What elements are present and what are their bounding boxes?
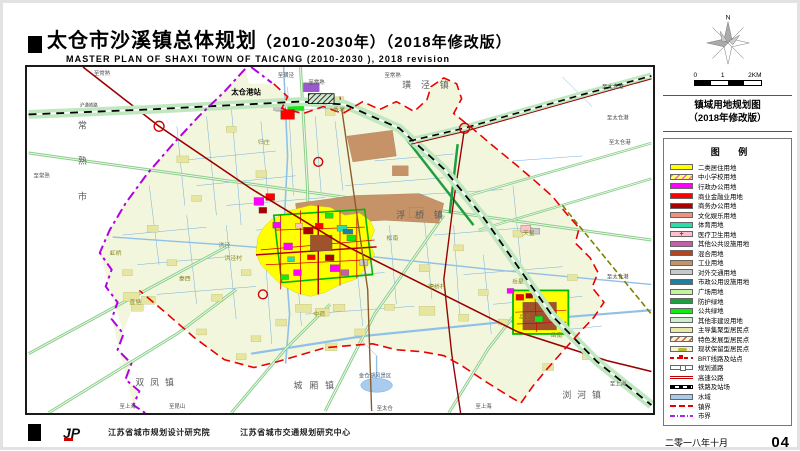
map-label: 金仓湖风景区 <box>359 371 392 379</box>
legend-row: 高速公路 <box>670 373 788 383</box>
legend-row: 水域 <box>670 392 788 402</box>
map-label: 至太仓港 <box>602 83 624 91</box>
legend-label: 商务办公用地 <box>698 201 736 210</box>
map-label: 至上海 <box>610 379 627 387</box>
map-label: 虹桥 <box>110 249 122 257</box>
legend-row: 现状保留型居民点 <box>670 344 788 354</box>
map-label: 太仓港站 <box>231 87 261 97</box>
legend: 图 例 二类居住用地中小学校用地行政办公用地商业金融业用地商务办公用地文化娱乐用… <box>663 138 792 426</box>
legend-label: 水域 <box>698 392 711 401</box>
legend-label: 其他公共设施用地 <box>698 239 749 248</box>
legend-row: 广场用地 <box>670 287 788 297</box>
map-label: 洪泾 <box>218 241 230 249</box>
map-label: 至璜泾 <box>278 71 295 79</box>
legend-row: 体育用地 <box>670 220 788 230</box>
legend-row: 特色发展型居民点 <box>670 334 788 344</box>
map-label: 岳王 <box>519 314 531 321</box>
legend-swatch-line-cityb <box>670 415 693 417</box>
legend-label: 市界 <box>698 411 711 420</box>
map-label: 德桥村 <box>428 282 446 290</box>
legend-swatch-fill <box>670 269 693 275</box>
map-label: 天星 <box>523 230 535 237</box>
legend-row: 行政办公用地 <box>670 182 788 192</box>
planning-map-svg: 璜泾镇浮桥镇双凤镇城厢镇浏河镇常熟市太仓港站归庄香塘洪泾洪泾村虹桥泰西松南中荷直… <box>27 67 653 413</box>
legend-row: 工业用地 <box>670 258 788 268</box>
legend-swatch-fill <box>670 260 693 266</box>
legend-label: 对外交通用地 <box>698 268 736 277</box>
legend-items: 二类居住用地中小学校用地行政办公用地商业金融业用地商务办公用地文化娱乐用地体育用… <box>670 163 788 421</box>
legend-row: BRT线路及站点 <box>670 354 788 364</box>
page-number: 04 <box>771 434 790 451</box>
legend-swatch-fill <box>670 241 693 247</box>
title-en: MASTER PLAN OF SHAXI TOWN OF TAICANG (20… <box>66 54 512 64</box>
legend-label: 工业用地 <box>698 258 724 267</box>
map-label: 归庄 <box>258 138 270 146</box>
sheet-title-line2: （2018年修改版） <box>663 113 792 126</box>
legend-swatch-fill <box>670 212 693 218</box>
legend-swatch-fill <box>670 279 693 285</box>
map-label: 至昆山 <box>169 402 185 410</box>
legend-label: 特色发展型居民点 <box>698 335 749 344</box>
legend-swatch-fill <box>670 250 693 256</box>
map-label: 浮桥镇 <box>396 209 452 220</box>
legend-swatch-fill <box>670 164 693 170</box>
legend-swatch-line-townb <box>670 405 693 407</box>
legend-label: 主导集聚型居民点 <box>698 325 749 334</box>
legend-swatch-fill <box>670 289 693 295</box>
map-label: 至常熟 <box>34 172 51 180</box>
legend-label: 行政办公用地 <box>698 182 736 191</box>
scale-tick-2: 2KM <box>748 72 761 79</box>
map-canvas[interactable]: 璜泾镇浮桥镇双凤镇城厢镇浏河镇常熟市太仓港站归庄香塘洪泾洪泾村虹桥泰西松南中荷直… <box>25 65 655 415</box>
map-label: 松南 <box>386 234 398 242</box>
legend-label: 公共绿地 <box>698 306 724 315</box>
taicang-port-station-box <box>308 94 334 104</box>
map-label: 岳星 <box>512 278 524 285</box>
legend-label: 体育用地 <box>698 220 724 229</box>
org-planning-institute: 江苏省城市规划设计研究院 <box>108 427 210 438</box>
map-label: 璜泾镇 <box>402 79 458 90</box>
legend-swatch-fill <box>670 298 693 304</box>
side-panel: N 0 1 2KM 镇域用地规划图 （2018年修改版） <box>663 8 792 442</box>
map-label: 至太仓港 <box>607 273 629 281</box>
legend-label: 镇界 <box>698 402 711 411</box>
map-label: 至常熟 <box>308 78 325 86</box>
legend-row: 市界 <box>670 411 788 421</box>
legend-label: 混合用地 <box>698 249 724 258</box>
legend-row: 镇界 <box>670 401 788 411</box>
legend-row: 混合用地 <box>670 249 788 259</box>
title-suffix: （2010-2030年）（2018年修改版） <box>257 34 512 51</box>
map-label: 泰西 <box>179 275 191 283</box>
org-transport-center: 江苏省城市交通规划研究中心 <box>240 427 351 438</box>
legend-label: 高速公路 <box>698 373 724 382</box>
title-bullet-square <box>28 36 42 53</box>
map-label: 双凤镇 <box>135 376 179 387</box>
map-label: 至太仓港 <box>607 113 629 121</box>
legend-swatch-line-brt <box>670 357 693 359</box>
north-label: N <box>725 15 730 22</box>
legend-swatch-fill <box>670 394 693 400</box>
legend-row: 对外交通用地 <box>670 268 788 278</box>
legend-row: 公共绿地 <box>670 306 788 316</box>
map-label: 洪泾村 <box>224 254 242 262</box>
legend-swatch-line-expy <box>670 376 693 379</box>
map-label: 至太仓港 <box>609 138 631 146</box>
legend-row: 商业金融业用地 <box>670 191 788 201</box>
divider-top <box>663 95 792 96</box>
map-label: 沪通铁路 <box>80 102 98 109</box>
legend-label: 防护绿地 <box>698 297 724 306</box>
legend-label: 二类居住用地 <box>698 163 736 172</box>
legend-label: 中小学校用地 <box>698 172 736 181</box>
map-label: 至太仓 <box>377 404 394 412</box>
legend-label: 铁路及站场 <box>698 382 730 391</box>
legend-row: +医疗卫生用地 <box>670 229 788 239</box>
sheet-title-line1: 镇域用地规划图 <box>663 100 792 113</box>
legend-row: 中小学校用地 <box>670 172 788 182</box>
legend-label: 规划道路 <box>698 363 724 372</box>
map-label: 中荷 <box>313 310 325 318</box>
legend-row: 二类居住用地 <box>670 163 788 173</box>
legend-row: 其他公共设施用地 <box>670 239 788 249</box>
sheet-title: 镇域用地规划图 （2018年修改版） <box>663 100 792 126</box>
page-title: 太仓市沙溪镇总体规划（2010-2030年）（2018年修改版） <box>47 24 512 53</box>
legend-label: 商业金融业用地 <box>698 192 743 201</box>
legend-row: 文化娱乐用地 <box>670 210 788 220</box>
legend-label: 其他非建设用地 <box>698 316 743 325</box>
compass-rose-icon: N <box>699 12 757 70</box>
compass: N <box>663 8 792 70</box>
legend-title: 图 例 <box>678 145 788 158</box>
sheet-date: 二零一八年十月 <box>665 436 728 449</box>
scale-bar: 0 1 2KM <box>694 72 762 90</box>
legend-swatch-fill <box>670 193 693 199</box>
legend-label: 市政公用设施用地 <box>698 277 749 286</box>
legend-swatch-fill <box>670 308 693 314</box>
title-zh: 太仓市沙溪镇总体规划 <box>47 30 257 52</box>
map-label: 香塘 <box>333 105 345 113</box>
legend-row: 主导集聚型居民点 <box>670 325 788 335</box>
footer-bullet-square <box>28 424 41 441</box>
jincang-lake <box>361 378 393 392</box>
legend-row: 商务办公用地 <box>670 201 788 211</box>
divider-mid <box>663 131 792 132</box>
legend-swatch-blob <box>670 346 693 352</box>
map-label: 至常熟 <box>384 71 401 79</box>
legend-swatch-hatch <box>670 174 693 180</box>
map-label: 城厢镇 <box>294 379 341 390</box>
legend-row: 市政公用设施用地 <box>670 277 788 287</box>
map-label: 至常熟 <box>94 69 111 77</box>
legend-row: 铁路及站场 <box>670 382 788 392</box>
legend-row: 其他非建设用地 <box>670 315 788 325</box>
legend-swatch-line-rail <box>670 385 693 389</box>
legend-row: 防护绿地 <box>670 296 788 306</box>
map-label: 至上海 <box>120 402 137 410</box>
legend-swatch-fill <box>670 183 693 189</box>
map-label: 直塘 <box>129 298 141 306</box>
map-label: 至上海 <box>475 402 492 410</box>
scale-bar-blocks <box>694 80 762 86</box>
legend-label: 文化娱乐用地 <box>698 211 736 220</box>
scale-tick-1: 1 <box>721 72 725 79</box>
legend-swatch-fill <box>670 222 693 228</box>
legend-swatch-fill <box>670 327 693 333</box>
jp-logo-icon: JP <box>63 425 80 441</box>
legend-label: 广场用地 <box>698 287 724 296</box>
legend-swatch-fill <box>670 203 693 209</box>
side-bottom: 二零一八年十月 04 <box>663 434 792 451</box>
legend-label: BRT线路及站点 <box>698 354 743 363</box>
footer: JP 江苏省城市规划设计研究院 江苏省城市交通规划研究中心 <box>28 424 381 441</box>
legend-row: 规划道路 <box>670 363 788 373</box>
legend-swatch-cross: + <box>670 231 693 237</box>
legend-swatch-fill <box>670 317 693 323</box>
legend-label: 现状保留型居民点 <box>698 344 749 353</box>
legend-label: 医疗卫生用地 <box>698 230 736 239</box>
map-label: 浏河镇 <box>562 389 606 400</box>
legend-swatch-hatch <box>670 336 693 342</box>
scale-tick-0: 0 <box>694 72 698 79</box>
legend-swatch-line-road <box>670 365 693 370</box>
map-label: 岳南 <box>551 331 563 339</box>
header: 太仓市沙溪镇总体规划（2010-2030年）（2018年修改版） MASTER … <box>28 24 512 64</box>
